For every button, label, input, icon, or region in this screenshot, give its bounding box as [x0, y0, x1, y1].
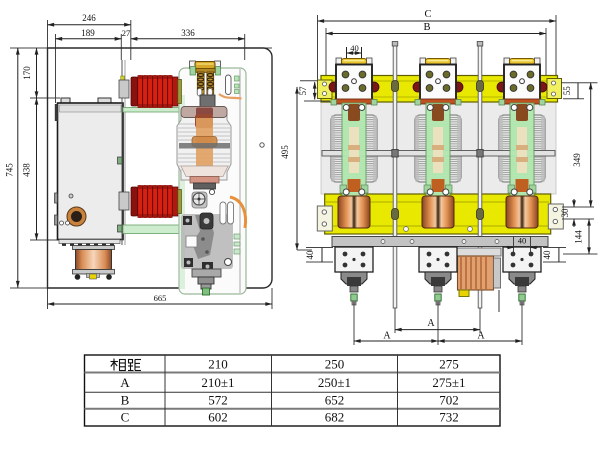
svg-text:495: 495 [280, 145, 290, 159]
svg-text:30: 30 [560, 208, 570, 218]
svg-text:A: A [120, 375, 130, 390]
svg-text:438: 438 [22, 163, 32, 177]
svg-text:210±1: 210±1 [201, 375, 234, 390]
svg-text:336: 336 [181, 28, 195, 38]
svg-text:246: 246 [82, 13, 96, 23]
svg-text:55: 55 [562, 86, 572, 96]
svg-text:40: 40 [305, 250, 315, 260]
svg-text:B: B [423, 22, 430, 33]
svg-text:210: 210 [208, 357, 228, 372]
svg-text:40: 40 [350, 43, 359, 53]
svg-text:602: 602 [208, 410, 228, 425]
svg-text:275: 275 [439, 357, 459, 372]
svg-text:A: A [427, 318, 435, 329]
svg-text:250±1: 250±1 [318, 375, 351, 390]
svg-text:702: 702 [439, 393, 459, 408]
svg-text:732: 732 [439, 410, 459, 425]
svg-text:144: 144 [574, 230, 584, 244]
svg-text:40: 40 [542, 250, 552, 260]
svg-text:572: 572 [208, 393, 228, 408]
svg-text:275±1: 275±1 [432, 375, 465, 390]
svg-text:349: 349 [572, 153, 582, 167]
svg-text:170: 170 [22, 66, 32, 80]
svg-text:C: C [424, 9, 431, 20]
svg-text:652: 652 [325, 393, 345, 408]
svg-text:A: A [477, 331, 485, 342]
svg-text:189: 189 [81, 28, 95, 38]
svg-text:57: 57 [298, 86, 308, 96]
svg-text:682: 682 [325, 410, 345, 425]
svg-text:C: C [121, 410, 130, 425]
svg-text:250: 250 [325, 357, 345, 372]
svg-text:745: 745 [5, 163, 15, 177]
svg-text:40: 40 [518, 236, 527, 246]
svg-text:A: A [383, 331, 391, 342]
svg-text:27: 27 [122, 28, 131, 38]
svg-text:665: 665 [154, 293, 167, 303]
svg-text:B: B [121, 393, 130, 408]
